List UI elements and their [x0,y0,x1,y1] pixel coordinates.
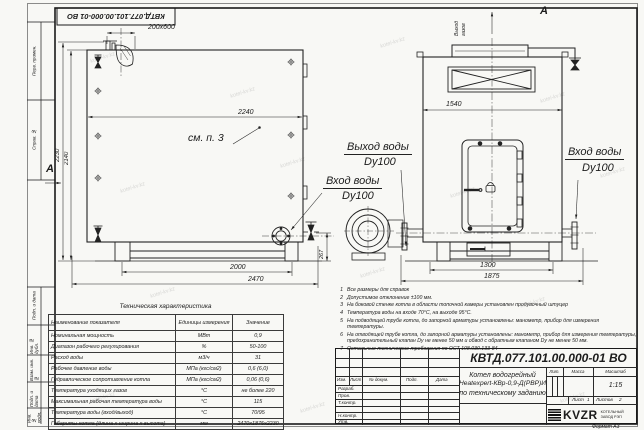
table-row: Температура воды (вход/выход)°С70/95 [49,408,284,419]
label-water-in-right: Вход воды [565,147,624,160]
inlet-valve [303,222,319,240]
dim-flange-height: 267 [320,239,326,259]
dim-height-outer: 2230 [55,134,61,162]
gas-out-label-1: Выход [455,6,460,36]
table-header-row: Наименование показателя Единицы измерени… [49,315,284,331]
strip-label-vzam-inv: Взам. инв. № [27,356,41,381]
tech-characteristics-table: Наименование показателя Единицы измерени… [48,314,284,430]
water-outlet-flange [401,223,424,250]
table-row: Диапазон рабочего регулирования%50-100 [49,342,284,353]
cell-name: Расход воды [49,353,176,364]
cell-unit: МПа (кгс/см2) [176,375,233,386]
cell-value: 0,9 [233,331,284,342]
kvzr-logo-sub2: ЗАВОД РЭП [601,415,624,419]
note-text: Температура воды на входе 70°С, на выход… [347,310,472,317]
col-header-value: Значение [233,315,284,331]
format-label: Формат А3 [592,425,619,430]
sheets-label: Листов [596,398,613,403]
cell-unit: м3/ч [176,353,233,364]
table-row: Температура уходящих газов°Сне более 220 [49,386,284,397]
cell-value: не более 220 [233,386,284,397]
note-item: 4Температура воды на входе 70°С, на выхо… [336,310,637,317]
label-water-in-mid-dn: Dy100 [342,191,374,202]
rev-header-dokum: № докум. [369,378,388,382]
kvzr-logo-text: KVZR [563,408,598,422]
cell-name: Диапазон рабочего регулирования [49,342,176,353]
strip-label-inv-dubl: Инв. № дубл. [27,326,41,354]
cell-value: 0,6 (6,0) [233,364,284,375]
lock-icon [486,183,495,193]
cell-name: Номинальная мощность [49,331,176,342]
label-water-out-dn: Dy100 [364,157,396,168]
sheets-value: 2 [619,398,622,403]
note-text: На отводящей трубе котла, до запорной ар… [347,332,637,345]
strip-label-podp-data-2: Подп. и дата [27,383,41,407]
gas-out-label-2: газов [462,6,467,36]
fan-drawing [344,206,403,260]
role-nkontr: Н.контр. [338,414,357,419]
cell-unit: МВт [176,331,233,342]
table-row: Номинальная мощностьМВт0,9 [49,331,284,342]
role-razrab: Разраб. [338,387,355,392]
note-reference: см. п. 3 [188,133,224,144]
scale-label: Масштаб [593,370,638,374]
note-item: 6На отводящей трубе котла, до запорной а… [336,332,637,345]
product-name-line3: по техническому заданию [459,390,546,397]
rev-header-izm: Изм. [337,378,346,382]
cell-value: 2470х1875х2230 [233,419,284,430]
lit-label: Лит. [546,370,563,374]
note-number: 6 [336,332,343,345]
cell-value: 50-100 [233,342,284,353]
table-row: Максимальная рабочая температура воды°С1… [49,397,284,408]
note-item: 3На боковой стенке котла в области топоч… [336,302,637,309]
corner-stamp-designation: КВТД.077.101.00.000-01 ВО [57,8,175,25]
note-item: 1Все размеры для справок [336,287,637,294]
kvzr-logo-subtext: КОТЕЛЬНЫЙ ЗАВОД РЭП [601,410,624,419]
rev-header-data: Дата [436,378,448,382]
cell-unit: °С [176,397,233,408]
technical-notes: 1Все размеры для справок 2Допустимое отк… [336,287,637,354]
cell-name: Максимальная рабочая температура воды [49,397,176,408]
rev-header-list: Лист [350,378,361,382]
dim-side-total: 1875 [484,273,500,280]
kvzr-logo-sub1: КОТЕЛЬНЫЙ [601,410,624,414]
note-number: 1 [336,287,343,294]
cell-unit: °С [176,408,233,419]
title-block: КВТД.077.101.00.000-01 ВО Изм. Лист № до… [335,348,637,424]
note-number: 5 [336,318,343,331]
label-water-out: Выход воды [344,142,412,155]
side-view-supports [437,242,562,261]
table-title: Техническая характеристика [48,304,283,311]
dim-length-total: 2470 [248,276,264,283]
drain-valve [94,226,103,242]
scale-value: 1:15 [593,382,638,389]
front-view-drawing [87,28,334,261]
cell-value: 0,06 (0,6) [233,375,284,386]
cell-value: 70/95 [233,408,284,419]
label-water-in-mid: Вход воды [323,176,382,189]
product-name-line2: Heatexpert-КВр-0,9-Д(РВР)И [459,381,546,388]
front-view-supports [115,242,298,261]
role-prov: Пров. [338,394,350,399]
sheet-label: Лист [572,398,584,403]
note-text: Все размеры для справок [347,287,409,294]
view-arrow-label: А [46,164,54,175]
cell-name: Температура уходящих газов [49,386,176,397]
dim-side-width-top: 1540 [446,101,462,108]
strip-label-podp-data-1: Подп. и дата [27,289,41,323]
cell-unit: МПа (кгс/см2) [176,364,233,375]
cell-name: Гидравлическое сопротивление котла [49,375,176,386]
mass-label: Масса [563,370,593,374]
note-text: Допустимое отклонение ±100 мм. [347,295,432,302]
kvzr-logo-mark [548,409,561,421]
role-utv: Утв. [338,420,348,425]
air-vent-valve [95,55,102,68]
cell-unit: % [176,342,233,353]
dim-flue: 200х600 [148,24,175,31]
cell-value: 31 [233,353,284,364]
col-header-name: Наименование показателя [49,315,176,331]
strip-label-inv-podl: Инв. № подл. [27,409,41,423]
cell-value: 115 [233,397,284,408]
furnace-door [462,140,523,232]
note-number: 4 [336,310,343,317]
table-row: Расход водым3/ч31 [49,353,284,364]
dim-side-span: 1300 [480,262,496,269]
table-row: Гидравлическое сопротивление котлаМПа (к… [49,375,284,386]
rev-header-podp: Подп. [406,378,418,382]
target-marks [95,59,295,200]
product-name-line1: Котел водогрейный [459,372,546,379]
grille [448,67,535,92]
note-item: 5На подводящей трубе котла, до запорной … [336,318,637,331]
drawing-sheet: kotel-kv.kz kotel-kv.kz kotel-kv.kz kote… [0,0,644,430]
cell-name: Температура воды (вход/выход) [49,408,176,419]
note-number: 2 [336,295,343,302]
dim-width-top: 2240 [238,109,254,116]
section-label: А [540,6,548,17]
dim-height-inner: 2140 [64,137,70,165]
col-header-unit: Единицы измерения [176,315,233,331]
dim-support-span: 2000 [230,264,246,271]
titleblock-designation: КВТД.077.101.00.000-01 ВО [459,352,638,364]
note-text: На подводящей трубе котла, до запорной а… [347,318,637,331]
strip-label-perv-primen: Перв. примен. [27,30,41,92]
role-tkontr: Т.контр. [338,401,357,406]
note-number: 3 [336,302,343,309]
table-row: Рабочее давление водыМПа (кгс/см2)0,6 (6… [49,364,284,375]
kvzr-logo: KVZR КОТЕЛЬНЫЙ ЗАВОД РЭП [548,406,635,423]
table-row: Габариты котла (длина х ширина х высота)… [49,419,284,430]
cell-unit: мм [176,419,233,430]
note-item: 2Допустимое отклонение ±100 мм. [336,295,637,302]
label-water-in-right-dn: Dy100 [582,163,614,174]
sheet-value: 1 [587,398,590,403]
front-view-dimensions [45,33,331,288]
cell-unit: °С [176,386,233,397]
strip-label-sprav-no: Справ. № [27,106,41,174]
chimney-valve [569,58,581,70]
water-inlet-flange-side [562,222,579,249]
cell-name: Габариты котла (длина х ширина х высота) [49,419,176,430]
note-text: На боковой стенке котла в области топочн… [347,302,568,309]
cell-name: Рабочее давление воды [49,364,176,375]
